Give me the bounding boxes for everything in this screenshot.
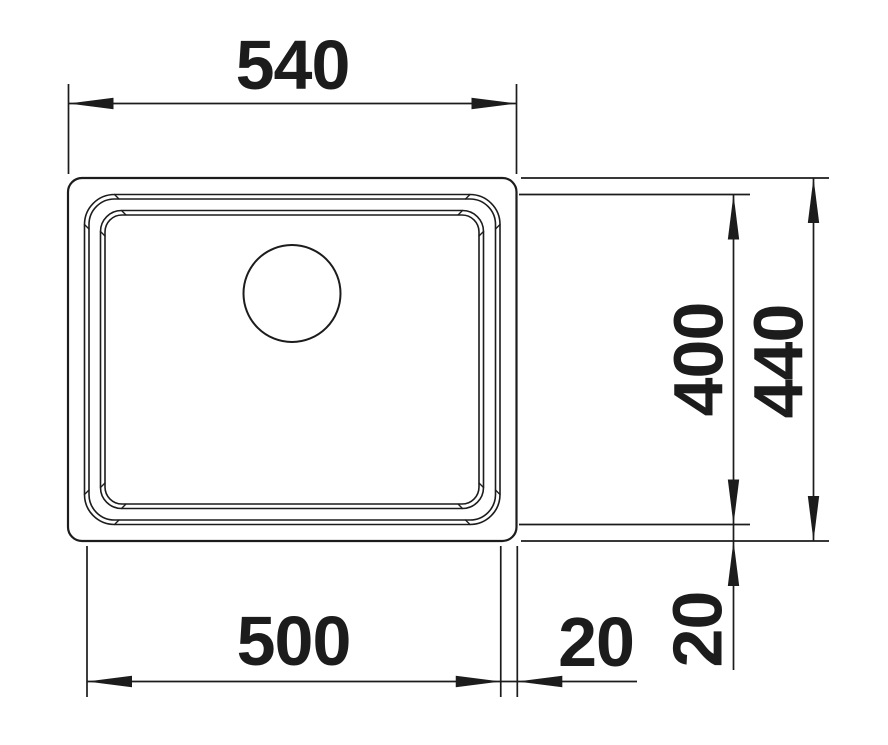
dim-label-offset-bottom: 20: [558, 603, 634, 681]
bowl-rim-outer-line-2: [89, 199, 496, 520]
dim-label-bowl-height: 400: [660, 303, 738, 417]
dim-label-outer-width: 540: [236, 26, 350, 104]
arrow-500-right: [456, 676, 501, 687]
arrow-440-top: [808, 178, 819, 223]
dim-label-offset-right: 20: [659, 592, 737, 668]
drawing-canvas: 540 500 20 400 440 20: [0, 0, 888, 745]
arrow-20-bottom: [517, 676, 562, 687]
arrow-20-right: [728, 541, 739, 586]
arrow-400-top: [728, 195, 739, 240]
sink-dimension-drawing: 540 500 20 400 440 20: [0, 0, 888, 745]
arrow-440-bottom: [808, 496, 819, 541]
arrow-540-right: [472, 98, 517, 109]
drain-hole: [244, 245, 341, 342]
dim-label-bowl-width: 500: [237, 602, 351, 680]
bowl-rim-inner-line-2: [105, 215, 479, 504]
rim-corner-ticks-outer: [85, 195, 501, 525]
bowl-rim-outer-line: [85, 195, 501, 525]
sink-outline: [68, 178, 517, 541]
rim-corner-ticks-inner: [101, 211, 484, 509]
arrow-540-left: [69, 98, 114, 109]
arrow-400-bottom: [728, 480, 739, 525]
dim-label-outer-height: 440: [740, 305, 818, 419]
arrow-500-left: [87, 676, 132, 687]
bowl-rim-inner-line: [101, 211, 484, 509]
sink-outer-edge: [68, 178, 517, 541]
